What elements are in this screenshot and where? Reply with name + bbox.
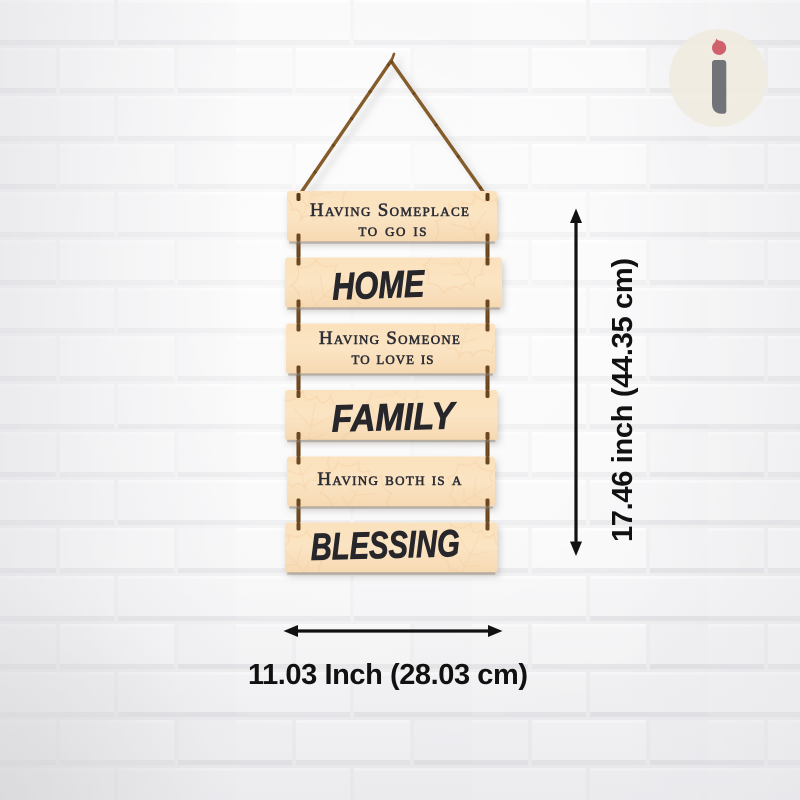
svg-text:BLESSING: BLESSING bbox=[310, 522, 460, 569]
svg-text:HOME: HOME bbox=[331, 263, 426, 308]
svg-text:to love is: to love is bbox=[352, 348, 434, 369]
svg-text:Having Someone: Having Someone bbox=[319, 328, 460, 349]
svg-text:Having both is a: Having both is a bbox=[317, 469, 462, 490]
svg-text:Having Someplace: Having Someplace bbox=[310, 200, 469, 221]
svg-text:11.03 Inch (28.03 cm): 11.03 Inch (28.03 cm) bbox=[248, 659, 528, 691]
svg-text:FAMILY: FAMILY bbox=[331, 394, 458, 440]
svg-text:17.46 inch (44.35 cm): 17.46 inch (44.35 cm) bbox=[607, 258, 639, 542]
svg-text:to go is: to go is bbox=[359, 220, 427, 241]
